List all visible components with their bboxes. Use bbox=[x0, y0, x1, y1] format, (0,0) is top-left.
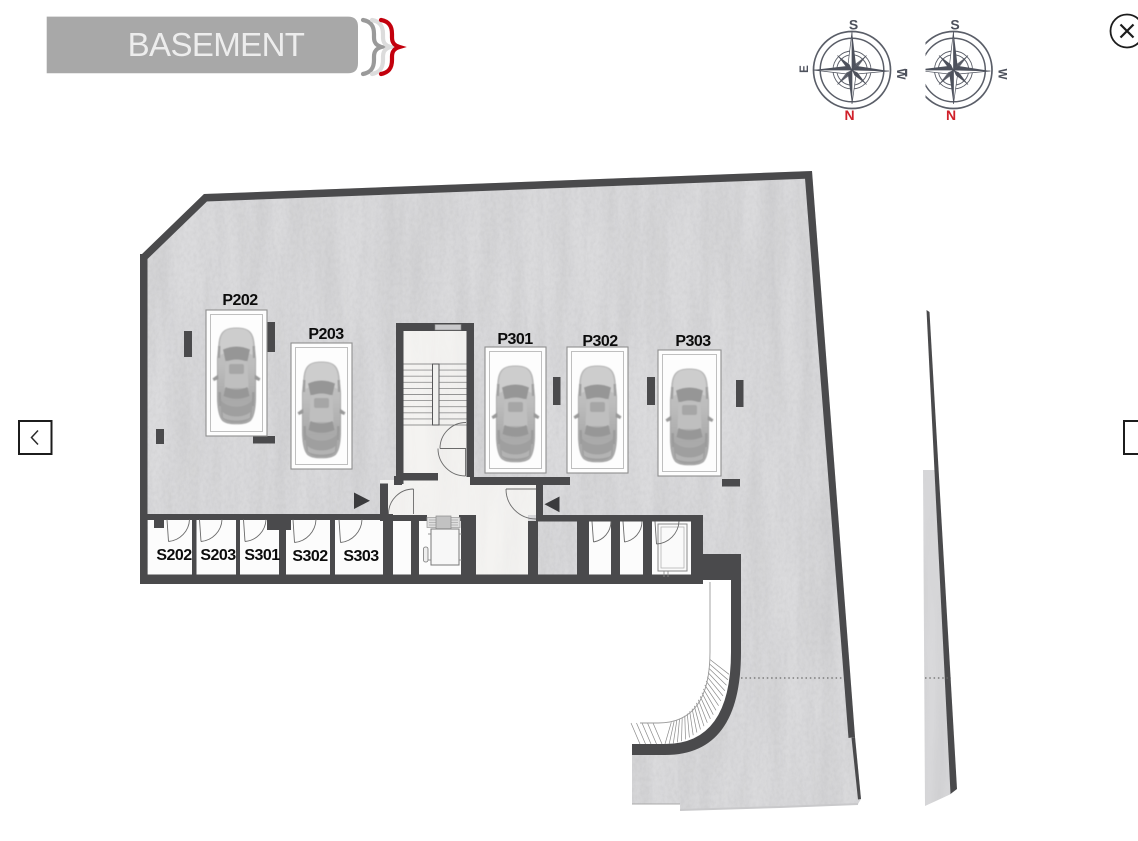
svg-text:P203: P203 bbox=[308, 326, 344, 343]
svg-text:P202: P202 bbox=[222, 292, 258, 309]
svg-text:P301: P301 bbox=[497, 331, 533, 348]
svg-text:S203: S203 bbox=[200, 547, 236, 564]
svg-text:S303: S303 bbox=[343, 548, 379, 565]
svg-text:P303: P303 bbox=[675, 333, 711, 350]
svg-text:S301: S301 bbox=[244, 547, 280, 564]
svg-text:P302: P302 bbox=[582, 333, 618, 350]
svg-text:S302: S302 bbox=[292, 548, 328, 565]
svg-text:BASEMENT: BASEMENT bbox=[128, 26, 305, 63]
svg-text:S: S bbox=[849, 17, 858, 33]
svg-text:E: E bbox=[799, 65, 811, 73]
svg-text:S202: S202 bbox=[156, 547, 192, 564]
svg-text:N: N bbox=[844, 107, 854, 123]
svg-text:W: W bbox=[894, 69, 906, 80]
